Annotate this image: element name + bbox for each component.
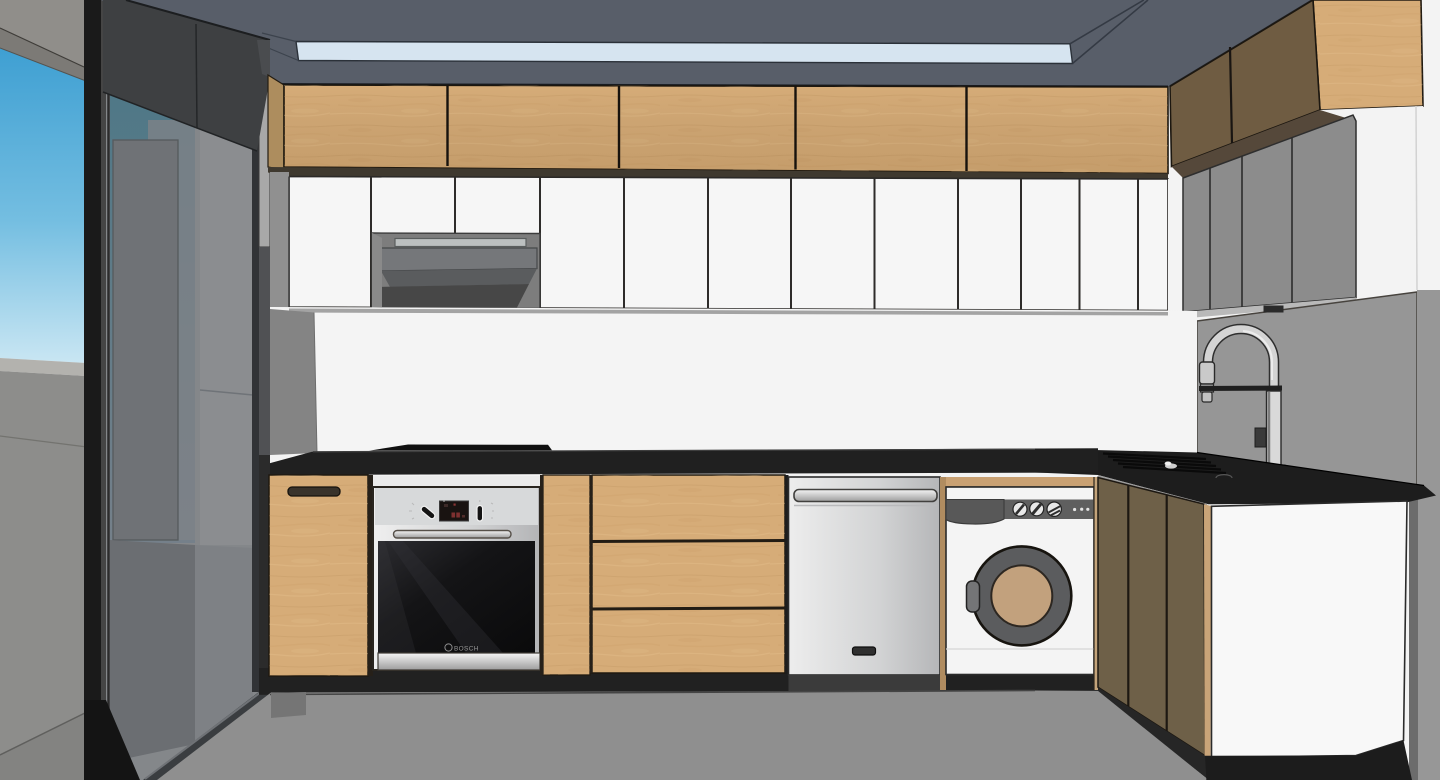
svg-text:BOSCH: BOSCH [454,646,479,653]
